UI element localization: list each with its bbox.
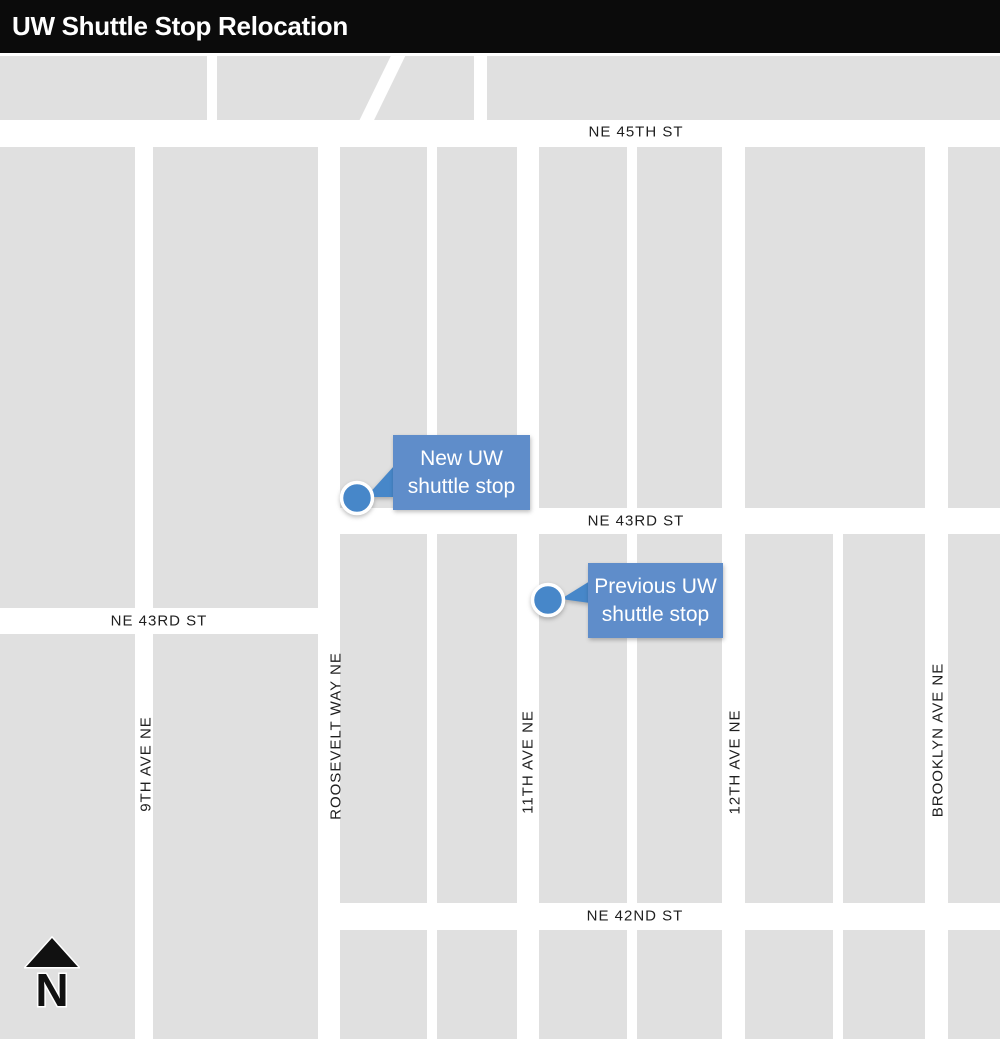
label-ne-43rd-st-west: NE 43RD ST	[111, 613, 208, 630]
previous-stop-dot-icon	[533, 585, 564, 616]
street-roosevelt-way-ne	[318, 120, 340, 1039]
previous-stop-callout: Previous UW shuttle stop	[588, 563, 723, 638]
new-stop-dot-icon	[342, 483, 373, 514]
header-divider	[0, 53, 1000, 56]
new-stop-label-line1: New UW	[393, 445, 530, 473]
previous-stop-label-line1: Previous UW	[588, 573, 723, 601]
previous-stop-pointer	[561, 581, 590, 603]
label-9th-ave-ne: 9TH AVE NE	[138, 716, 155, 812]
label-brooklyn-ave-ne: BROOKLYN AVE NE	[930, 663, 947, 818]
uw-shuttle-map: UW Shuttle Stop Relocation NE 45TH ST NE…	[0, 0, 1000, 1039]
north-arrow-letter: N	[35, 964, 68, 1010]
street-alley-mid-3	[833, 534, 843, 1039]
new-stop-callout: New UW shuttle stop	[393, 435, 530, 510]
new-stop-label-line2: shuttle stop	[393, 473, 530, 501]
label-ne-45th-st: NE 45TH ST	[588, 124, 683, 141]
street-12th-ave-ne	[722, 120, 745, 1039]
street-alley-top-1	[207, 53, 217, 123]
street-9th-ave-ne	[135, 120, 153, 1039]
label-ne-42nd-st: NE 42ND ST	[587, 908, 684, 925]
label-12th-ave-ne: 12TH AVE NE	[727, 710, 744, 815]
street-brooklyn-ave-ne	[925, 120, 948, 1039]
previous-stop-marker	[525, 575, 595, 630]
label-roosevelt-way-ne: ROOSEVELT WAY NE	[328, 652, 345, 820]
street-alley-top-2	[474, 53, 487, 123]
header-bar: UW Shuttle Stop Relocation	[0, 0, 1000, 53]
north-arrow-icon: N	[24, 936, 80, 1010]
new-stop-marker	[330, 460, 400, 520]
previous-stop-label-line2: shuttle stop	[588, 601, 723, 629]
label-11th-ave-ne: 11TH AVE NE	[520, 710, 537, 814]
label-ne-43rd-st-east: NE 43RD ST	[588, 513, 685, 530]
street-alley-mid-1	[427, 145, 437, 1039]
north-arrow-triangle	[26, 938, 78, 967]
page-title: UW Shuttle Stop Relocation	[12, 11, 348, 42]
